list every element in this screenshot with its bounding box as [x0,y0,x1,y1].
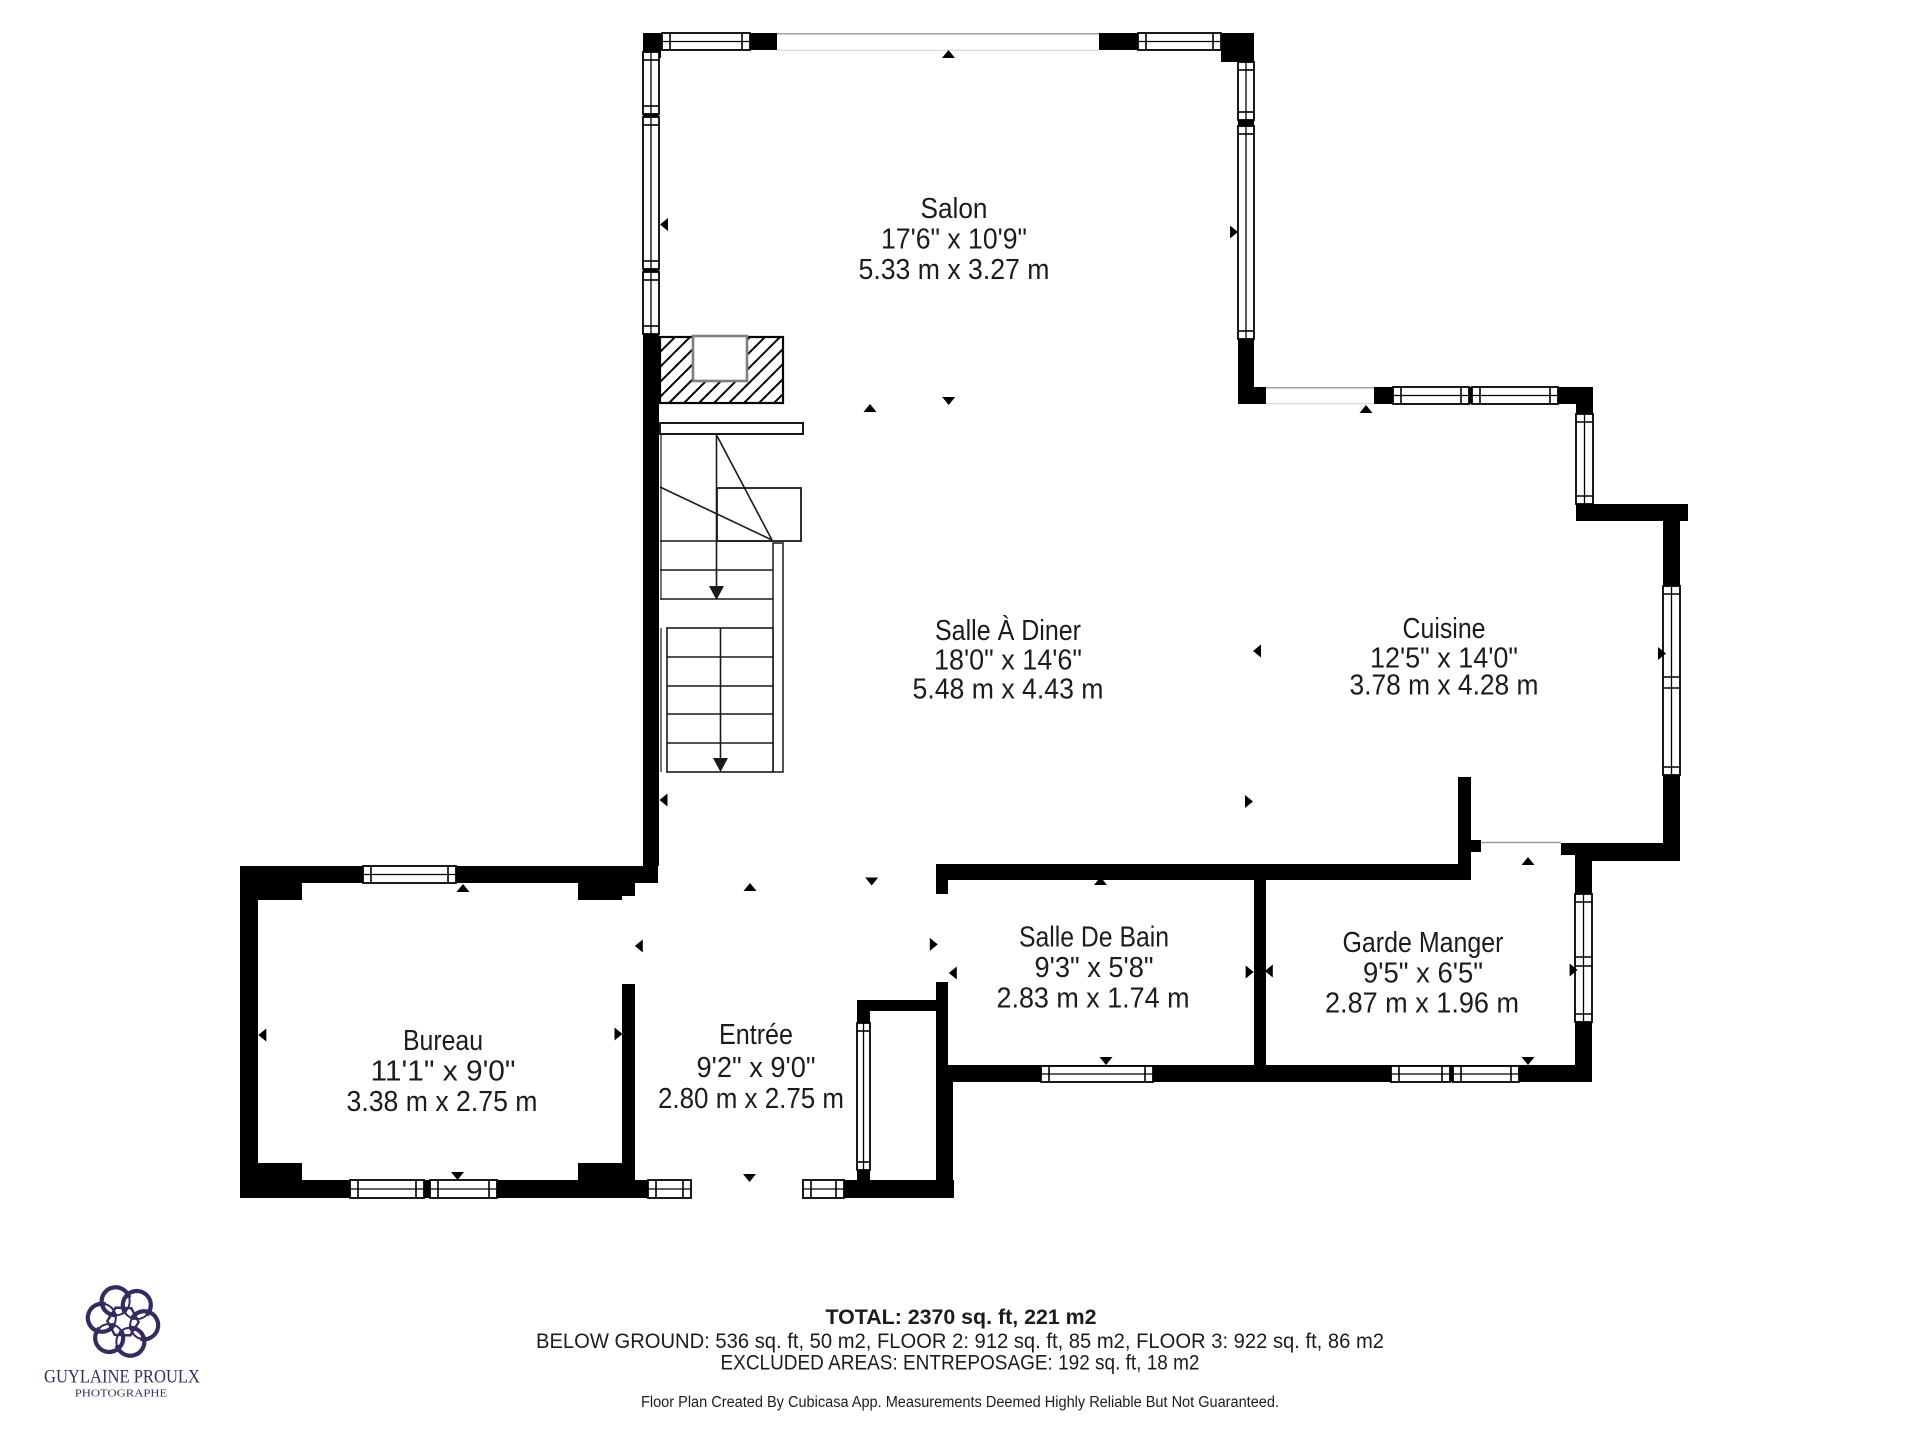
svg-text:PHOTOGRAPHE: PHOTOGRAPHE [75,1388,168,1400]
svg-text:Salon: Salon [921,193,988,225]
svg-text:Bureau: Bureau [403,1025,483,1057]
svg-text:Cuisine: Cuisine [1403,613,1486,645]
svg-text:Salle De Bain: Salle De Bain [1019,922,1169,954]
svg-text:9'5" x 6'5": 9'5" x 6'5" [1363,958,1483,990]
svg-text:3.38 m x 2.75 m: 3.38 m x 2.75 m [347,1086,538,1118]
svg-text:2.80 m x 2.75 m: 2.80 m x 2.75 m [658,1083,844,1115]
svg-text:Entrée: Entrée [719,1019,793,1051]
svg-text:9'2" x 9'0": 9'2" x 9'0" [697,1052,816,1084]
svg-text:9'3" x 5'8": 9'3" x 5'8" [1035,952,1154,984]
svg-text:3.78 m x 4.28 m: 3.78 m x 4.28 m [1350,670,1539,702]
svg-text:GUYLAINE PROULX: GUYLAINE PROULX [44,1368,201,1388]
svg-text:TOTAL: 2370 sq. ft, 221 m2: TOTAL: 2370 sq. ft, 221 m2 [826,1306,1097,1329]
svg-text:Floor Plan Created By Cubicasa: Floor Plan Created By Cubicasa App. Meas… [641,1394,1279,1411]
svg-text:17'6" x 10'9": 17'6" x 10'9" [881,224,1027,256]
svg-text:Garde Manger: Garde Manger [1343,927,1504,959]
svg-text:5.33 m x 3.27 m: 5.33 m x 3.27 m [859,254,1050,286]
svg-text:EXCLUDED AREAS: ENTREPOSAGE: 1: EXCLUDED AREAS: ENTREPOSAGE: 192 sq. ft,… [721,1352,1200,1375]
svg-text:11'1" x 9'0": 11'1" x 9'0" [371,1055,516,1087]
svg-text:5.48 m x 4.43 m: 5.48 m x 4.43 m [913,674,1104,706]
svg-text:BELOW GROUND: 536 sq. ft, 50 m: BELOW GROUND: 536 sq. ft, 50 m2, FLOOR 2… [536,1330,1384,1353]
svg-text:Salle À Diner: Salle À Diner [935,614,1081,647]
svg-text:18'0" x 14'6": 18'0" x 14'6" [934,645,1082,677]
svg-text:2.83 m x 1.74 m: 2.83 m x 1.74 m [997,983,1190,1015]
svg-text:2.87 m x 1.96 m: 2.87 m x 1.96 m [1325,988,1519,1020]
